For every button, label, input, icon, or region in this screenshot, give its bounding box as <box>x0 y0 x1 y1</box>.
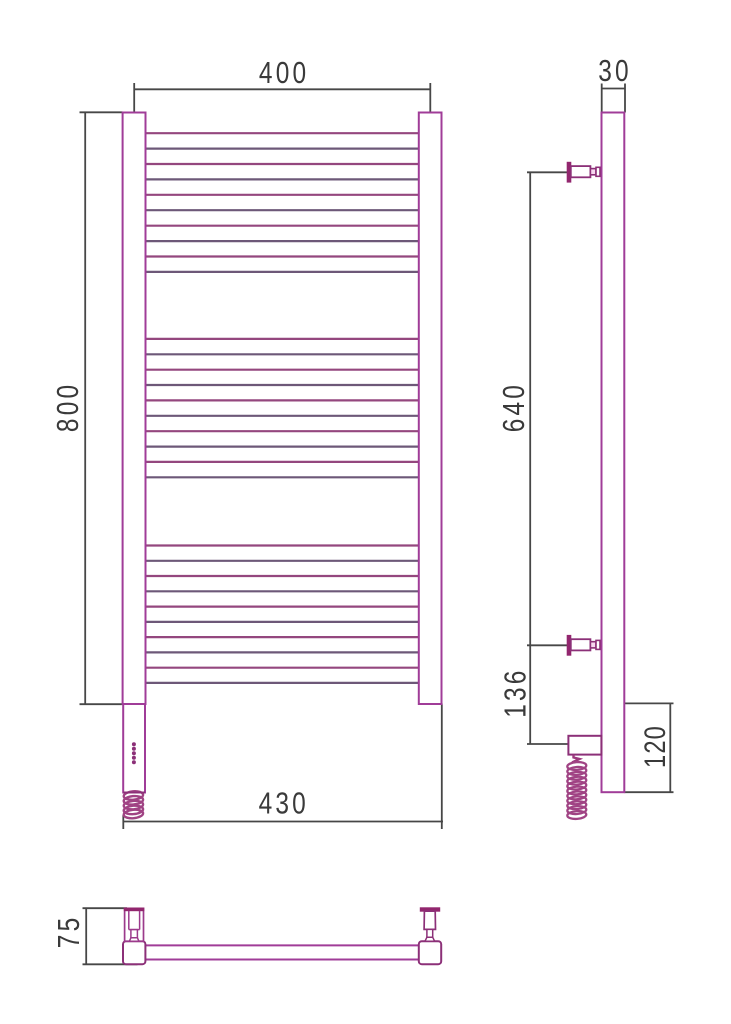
svg-text:120: 120 <box>638 725 671 768</box>
svg-text:400: 400 <box>259 55 309 89</box>
svg-text:75: 75 <box>51 915 85 949</box>
svg-text:136: 136 <box>498 667 532 717</box>
svg-text:430: 430 <box>259 786 309 820</box>
svg-text:640: 640 <box>496 382 530 432</box>
svg-text:800: 800 <box>50 382 84 432</box>
svg-text:30: 30 <box>598 53 632 87</box>
